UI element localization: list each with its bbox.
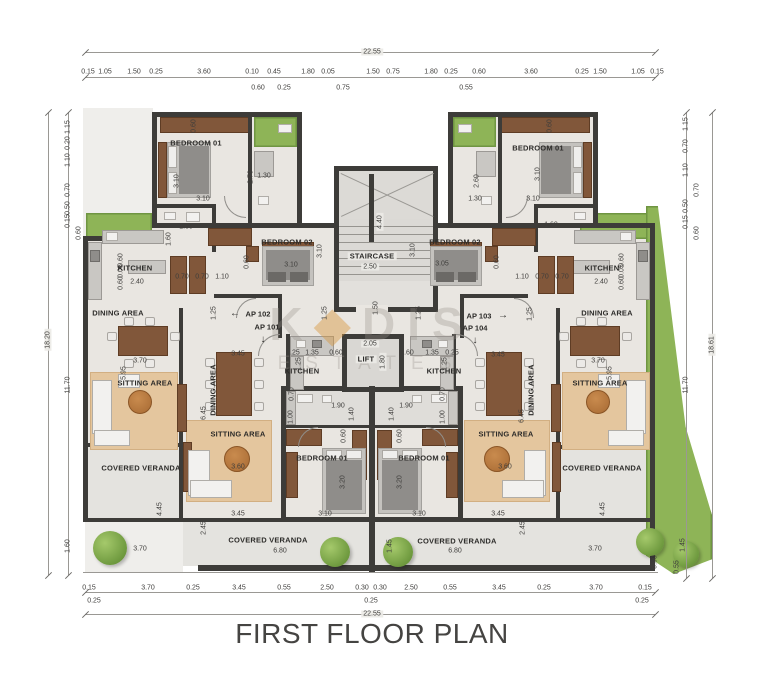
- dim-label: 2.50: [404, 585, 418, 592]
- dim-label: 1.60: [166, 232, 173, 246]
- dim-label: 0.60: [251, 85, 265, 92]
- dim-label: 1.25: [527, 307, 534, 321]
- veranda-floor: [88, 447, 180, 518]
- dim-label: 6.45: [519, 409, 526, 423]
- dining-table: [118, 326, 168, 356]
- dim-label: 3.10: [535, 167, 542, 181]
- dim-label: 2.45: [520, 521, 527, 535]
- dim-label: 0.60: [397, 429, 404, 443]
- dim-label: 1.05: [631, 69, 645, 76]
- bed-blanket: [179, 146, 209, 194]
- sink: [574, 212, 586, 220]
- dimension-line: [68, 112, 69, 575]
- dim-label: 0.30: [355, 585, 369, 592]
- wall: [302, 223, 338, 228]
- dim-label: 3.70: [133, 546, 147, 553]
- dim-label: 1.30: [257, 173, 271, 180]
- dim-label: 0.10: [245, 69, 259, 76]
- dim-label: 4.40: [377, 213, 384, 231]
- tick: [65, 572, 72, 579]
- dim-label: 0.60: [494, 255, 501, 269]
- ap102-label: AP 102: [246, 310, 271, 318]
- dim-label: 0.60: [76, 226, 83, 240]
- dim-label: 3.70: [588, 546, 602, 553]
- dim-label: 0.15: [683, 215, 690, 229]
- pillow: [436, 272, 454, 282]
- dim-label: 0.30: [373, 585, 387, 592]
- wardrobe: [208, 228, 252, 246]
- dim-label: 1.35: [425, 350, 439, 357]
- dim-label: 1.25: [211, 306, 218, 320]
- dim-total-right: 18.61: [709, 334, 716, 356]
- hob: [90, 250, 100, 262]
- dim-label: 0.55: [674, 560, 681, 574]
- dining-table: [570, 326, 620, 356]
- dim-label: 2.50: [320, 585, 334, 592]
- dim-label: 2.60: [474, 174, 481, 188]
- dim-label: 0.45: [267, 69, 281, 76]
- sink: [278, 124, 292, 133]
- closet: [160, 117, 250, 133]
- dim-label: 2.05: [361, 341, 379, 348]
- dim-label: 3.10: [526, 196, 540, 203]
- dim-label: 3.60: [498, 464, 512, 471]
- dim-label: 1.10: [515, 274, 529, 281]
- dim-label: 1.80: [301, 69, 315, 76]
- dim-label: 0.20: [65, 136, 72, 150]
- site-line: [83, 572, 658, 573]
- tree: [636, 528, 664, 556]
- dim-label: 3.45: [491, 511, 505, 518]
- ap102-arrow-icon: ←: [230, 309, 240, 319]
- pillow: [573, 172, 582, 194]
- dim-label: 0.60: [400, 350, 414, 357]
- page-title: FIRST FLOOR PLAN: [235, 618, 509, 650]
- dim-label: 0.70: [65, 183, 72, 197]
- dining-table: [216, 352, 252, 416]
- coffee-table: [128, 390, 152, 414]
- sofa: [190, 480, 232, 498]
- dim-label: 2.40: [594, 279, 608, 286]
- stair-rail: [369, 174, 374, 242]
- dim-label: 0.15: [638, 585, 652, 592]
- dimension-line: [85, 592, 655, 593]
- pillow: [458, 272, 476, 282]
- dim-label: 3.45: [231, 351, 245, 358]
- dim-label: 0.60: [118, 276, 125, 290]
- dim-label: 0.70: [555, 274, 569, 281]
- dim-label: 3.10: [317, 244, 324, 258]
- dim-label: 3.45: [492, 585, 506, 592]
- dim-label: 6.80: [273, 548, 287, 555]
- dim-label: 6.45: [201, 406, 208, 420]
- dim-label: 3.60: [197, 69, 211, 76]
- wardrobe: [492, 228, 536, 246]
- ap103-label: AP 103: [467, 312, 492, 320]
- dim-label: 0.70: [683, 139, 690, 153]
- dim-label: 0.25: [635, 598, 649, 605]
- dim-label: 1.60: [544, 222, 558, 229]
- dim-label: 0.25: [537, 585, 551, 592]
- wall: [183, 518, 655, 522]
- dim-label: 1.00: [440, 410, 447, 424]
- ap101-label: AP 101: [255, 323, 280, 331]
- dim-label: 0.60: [341, 429, 348, 443]
- pillow: [268, 272, 286, 282]
- tick: [45, 572, 52, 579]
- room-label-bedroom-02-r: BEDROOM 02: [429, 238, 481, 246]
- chair: [559, 332, 569, 341]
- room-label-veranda-br: COVERED VERANDA: [417, 537, 496, 545]
- dim-label: 1.90: [331, 403, 345, 410]
- dim-total-bottom: 22.55: [361, 611, 383, 618]
- dim-label: 0.60: [694, 226, 701, 240]
- room-label-dining-l: DINING AREA: [92, 309, 144, 317]
- dim-label: 0.25: [364, 598, 378, 605]
- chair: [124, 317, 134, 326]
- chair: [145, 317, 155, 326]
- dim-label: 0.15: [65, 214, 72, 228]
- ap104-arrow-icon: ↓: [473, 336, 478, 346]
- dim-label: 0.25: [286, 350, 300, 357]
- dim-label: 0.70: [195, 274, 209, 281]
- dim-label: 1.50: [593, 69, 607, 76]
- sofa: [626, 380, 646, 434]
- dim-label: 3.10: [284, 262, 298, 269]
- dim-label: 1.25: [416, 306, 423, 320]
- chair: [475, 358, 485, 367]
- dim-label: 3.70: [141, 585, 155, 592]
- dim-label: 3.20: [397, 475, 404, 489]
- dim-label: 1.45: [387, 539, 394, 553]
- dim-label: 0.05: [321, 69, 335, 76]
- tv-unit: [551, 384, 561, 432]
- coffee-table: [586, 390, 610, 414]
- dim-label: 0.60: [191, 119, 198, 133]
- dim-label: 0.60: [619, 276, 626, 290]
- dim-label: 1.05: [98, 69, 112, 76]
- dim-label: 3.60: [231, 464, 245, 471]
- room-label-bedroom-01-cl: BEDROOM 01: [296, 454, 348, 462]
- room-label-bedroom-01-cr: BEDROOM 01: [398, 454, 450, 462]
- pillow: [573, 146, 582, 168]
- dim-label: 11.70: [65, 377, 72, 394]
- dim-label: 0.50: [683, 199, 690, 213]
- bed-blanket: [541, 146, 571, 194]
- closet: [500, 117, 590, 133]
- dim-label: 3.60: [524, 69, 538, 76]
- sofa: [94, 430, 130, 446]
- dim-label: 1.50: [366, 69, 380, 76]
- dim-label: 0.25: [575, 69, 589, 76]
- green-strip-right: [646, 206, 712, 574]
- dim-label: 1.25: [322, 306, 329, 320]
- chair: [475, 402, 485, 411]
- tick: [652, 611, 659, 618]
- room-label-veranda-bl: COVERED VERANDA: [228, 536, 307, 544]
- tick: [683, 575, 690, 582]
- dim-label: 0.70: [440, 387, 447, 401]
- pillow: [382, 450, 398, 459]
- dimension-line: [686, 112, 687, 578]
- toilet: [481, 196, 492, 205]
- room-label-bedroom-02-l: BEDROOM 02: [261, 238, 313, 246]
- dim-label: 1.80: [380, 353, 387, 371]
- room-label-dining-cl: DINING AREA: [209, 364, 217, 416]
- room-label-kitchen-r: KITCHEN: [585, 264, 620, 272]
- chair: [170, 332, 180, 341]
- dim-label: 0.25: [149, 69, 163, 76]
- sofa: [608, 430, 644, 446]
- wall: [157, 204, 215, 208]
- sink: [106, 232, 118, 241]
- dim-label: 1.10: [65, 153, 72, 167]
- dim-label: 0.25: [445, 350, 459, 357]
- wall: [369, 386, 375, 572]
- stairs-treads: [339, 219, 433, 281]
- dim-label: 0.60: [472, 69, 486, 76]
- dim-label: 1.30: [468, 196, 482, 203]
- chair: [107, 332, 117, 341]
- dim-label: 0.25: [186, 585, 200, 592]
- dim-label: 3.70: [589, 585, 603, 592]
- dim-label: 0.15: [650, 69, 664, 76]
- dim-label: 4.45: [157, 502, 164, 516]
- dim-label: 3.20: [340, 475, 347, 489]
- toilet: [186, 212, 200, 222]
- sofa: [92, 380, 112, 434]
- dim-label: 2.50: [361, 264, 379, 271]
- dim-label: 1.10: [215, 274, 229, 281]
- room-label-sitting-cl: SITTING AREA: [210, 430, 265, 438]
- dim-label: 0.70: [289, 387, 296, 401]
- sofa: [502, 480, 544, 498]
- chair: [254, 358, 264, 367]
- dim-total-left: 18.20: [45, 329, 52, 351]
- room-label-veranda-l: COVERED VERANDA: [101, 464, 180, 472]
- wall: [596, 223, 655, 228]
- dim-label: 0.90: [652, 555, 659, 569]
- room-label-dining-r: DINING AREA: [581, 309, 633, 317]
- pillow: [168, 146, 177, 168]
- dim-label: 6.80: [448, 548, 462, 555]
- sink: [164, 212, 176, 220]
- tick: [652, 589, 659, 596]
- dim-label: 1.90: [399, 403, 413, 410]
- dim-label: 3.45: [232, 585, 246, 592]
- chair: [576, 317, 586, 326]
- chair: [254, 380, 264, 389]
- pillow: [290, 272, 308, 282]
- dim-label: 1.40: [349, 407, 356, 421]
- dim-label: 3.45: [491, 352, 505, 359]
- room-label-sitting-cr: SITTING AREA: [478, 430, 533, 438]
- sink: [297, 394, 313, 403]
- tree: [320, 537, 350, 567]
- room-label-bedroom-01-tr: BEDROOM 01: [512, 144, 564, 152]
- dining-table: [486, 352, 522, 416]
- dim-label: 0.55: [443, 585, 457, 592]
- wall: [434, 223, 452, 228]
- dim-label: 1.00: [288, 410, 295, 424]
- dim-label: 3.70: [591, 358, 605, 365]
- dim-label: 0.55: [277, 585, 291, 592]
- dim-label: 0.25: [444, 69, 458, 76]
- dim-label: 1.10: [683, 163, 690, 177]
- toilet: [412, 395, 422, 403]
- dim-label: 1.15: [65, 120, 72, 134]
- room-label-veranda-r: COVERED VERANDA: [562, 464, 641, 472]
- room-label-dining-cr: DINING AREA: [527, 364, 535, 416]
- bed-headboard: [583, 142, 592, 198]
- dim-label: 0.60: [329, 350, 343, 357]
- room-label-kitchen-l: KITCHEN: [118, 264, 153, 272]
- dim-label: 1.80: [424, 69, 438, 76]
- dim-label: 2.45: [201, 521, 208, 535]
- pillow: [346, 450, 362, 459]
- dim-label: 0.25: [87, 598, 101, 605]
- sink: [620, 232, 632, 241]
- tree: [93, 531, 127, 565]
- ap103-arrow-icon: →: [498, 311, 508, 321]
- chair: [475, 380, 485, 389]
- dim-label: 0.25: [277, 85, 291, 92]
- dim-total-top: 22.55: [361, 49, 383, 56]
- dim-label: 3.70: [133, 358, 147, 365]
- dim-label: 1.50: [373, 301, 380, 315]
- ap104-label: AP 104: [463, 324, 488, 332]
- dim-label: 0.70: [535, 274, 549, 281]
- tv-unit: [177, 384, 187, 432]
- dim-label: 3.10: [196, 196, 210, 203]
- dim-label: 3.10: [174, 174, 181, 188]
- room-label-sitting-l: SITTING AREA: [117, 379, 172, 387]
- dim-label: 0.15: [81, 69, 95, 76]
- wall: [198, 565, 655, 571]
- dim-label: 1.45: [680, 538, 687, 552]
- dim-label: 0.70: [694, 183, 701, 197]
- dim-label: 2.40: [130, 279, 144, 286]
- dimension-line: [85, 77, 655, 78]
- dim-label: 0.60: [547, 119, 554, 133]
- dim-label: 1.60: [179, 224, 193, 231]
- dim-label: 0.55: [459, 85, 473, 92]
- dim-label: 0.60: [244, 255, 251, 269]
- dim-label: 4.45: [600, 502, 607, 516]
- toilet: [258, 196, 269, 205]
- floor-plan-sheet: K◆DIS ESTATES 22.55 22.55 18.20 18.61 0.…: [0, 0, 768, 690]
- chair: [622, 332, 632, 341]
- dim-label: 0.15: [82, 585, 96, 592]
- tick: [652, 49, 659, 56]
- dim-label: 3.10: [410, 243, 417, 257]
- chair: [576, 359, 586, 368]
- hob: [638, 250, 648, 262]
- dim-label: 1.40: [389, 407, 396, 421]
- tick: [709, 575, 716, 582]
- dim-label: 3.10: [318, 511, 332, 518]
- room-label-bedroom-01-tl: BEDROOM 01: [170, 139, 222, 147]
- room-label-kitchen-cl: KITCHEN: [285, 367, 320, 375]
- wall: [535, 204, 593, 208]
- chair: [597, 317, 607, 326]
- dim-label: 1.15: [683, 117, 690, 131]
- wall: [83, 518, 185, 522]
- shower: [448, 391, 458, 425]
- dim-label: 1.50: [127, 69, 141, 76]
- dim-label: 0.50: [65, 201, 72, 215]
- sink: [458, 124, 472, 133]
- dim-label: 1.60: [65, 539, 72, 553]
- dim-label: 3.10: [412, 511, 426, 518]
- bed-headboard: [158, 142, 167, 198]
- wall: [498, 117, 502, 223]
- dim-label: 0.75: [386, 69, 400, 76]
- room-label-staircase: STAIRCASE: [348, 252, 397, 260]
- dim-label: 3.45: [231, 511, 245, 518]
- dim-label: 0.70: [175, 274, 189, 281]
- dim-label: 2.70: [248, 170, 255, 184]
- dim-label: 3.05: [435, 261, 449, 268]
- chair: [254, 402, 264, 411]
- room-label-kitchen-cr: KITCHEN: [427, 367, 462, 375]
- tv-unit: [552, 442, 561, 492]
- room-label-lift: LIFT: [356, 355, 377, 363]
- dim-label: 1.35: [305, 350, 319, 357]
- ap101-arrow-icon: ↓: [261, 335, 266, 345]
- room-label-sitting-r: SITTING AREA: [572, 379, 627, 387]
- dim-label: 11.70: [683, 377, 690, 394]
- dim-label: 0.75: [336, 85, 350, 92]
